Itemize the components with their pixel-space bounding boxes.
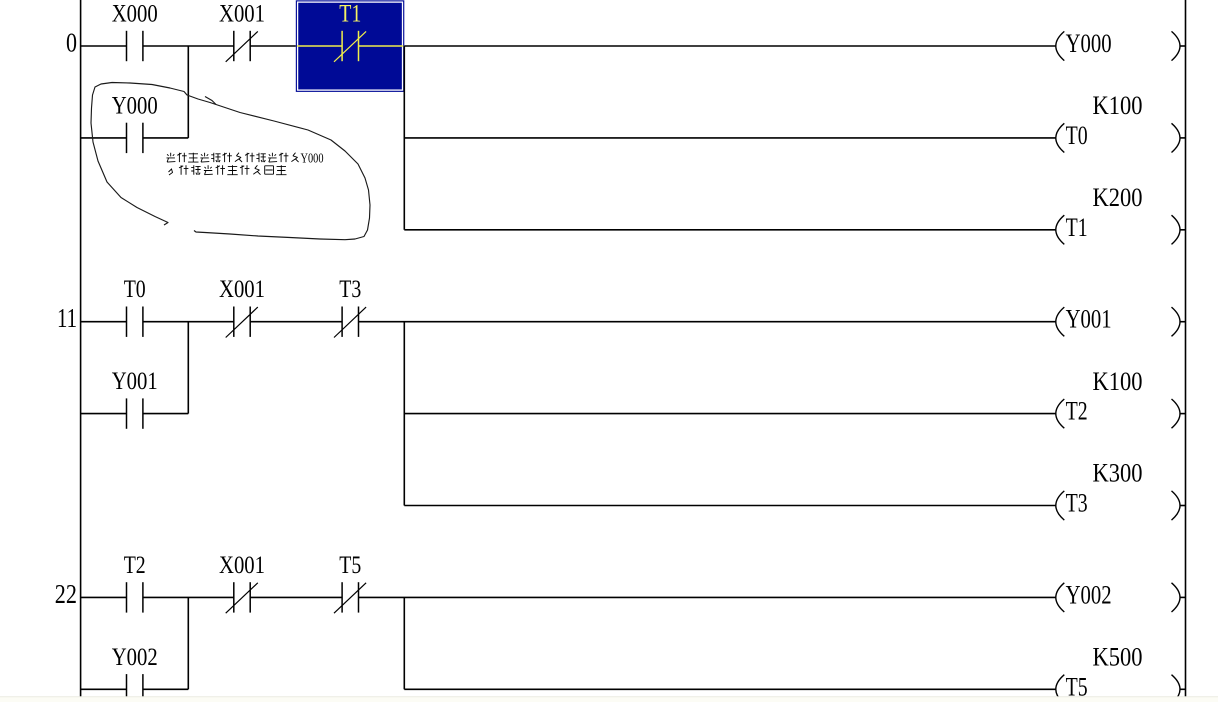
svg-text:Y002: Y002 bbox=[1066, 580, 1112, 609]
svg-text:X001: X001 bbox=[219, 550, 265, 579]
svg-text:T0: T0 bbox=[124, 274, 146, 303]
svg-text:T2: T2 bbox=[1066, 397, 1088, 426]
svg-text:Y001: Y001 bbox=[112, 366, 158, 395]
svg-text:T0: T0 bbox=[1066, 121, 1088, 150]
svg-text:K500: K500 bbox=[1093, 643, 1143, 672]
svg-text:K100: K100 bbox=[1093, 367, 1143, 396]
svg-text:Y000: Y000 bbox=[301, 151, 324, 166]
svg-text:T2: T2 bbox=[124, 550, 146, 579]
svg-text:X000: X000 bbox=[112, 0, 158, 28]
svg-text:K300: K300 bbox=[1093, 459, 1143, 488]
svg-text:Y000: Y000 bbox=[112, 90, 158, 119]
svg-text:11: 11 bbox=[57, 302, 77, 333]
svg-text:T3: T3 bbox=[339, 274, 361, 303]
svg-text:X001: X001 bbox=[219, 0, 265, 28]
svg-text:K100: K100 bbox=[1093, 91, 1143, 120]
svg-text:T1: T1 bbox=[1066, 213, 1088, 242]
svg-text:Y000: Y000 bbox=[1066, 29, 1112, 58]
svg-text:T3: T3 bbox=[1066, 489, 1088, 518]
svg-text:Y001: Y001 bbox=[1066, 305, 1112, 334]
svg-text:T5: T5 bbox=[339, 550, 361, 579]
svg-text:Y002: Y002 bbox=[112, 642, 158, 671]
svg-text:22: 22 bbox=[55, 578, 77, 609]
svg-text:K200: K200 bbox=[1093, 183, 1143, 212]
svg-text:X001: X001 bbox=[219, 274, 265, 303]
svg-text:T1: T1 bbox=[339, 0, 361, 28]
svg-text:0: 0 bbox=[66, 27, 77, 58]
